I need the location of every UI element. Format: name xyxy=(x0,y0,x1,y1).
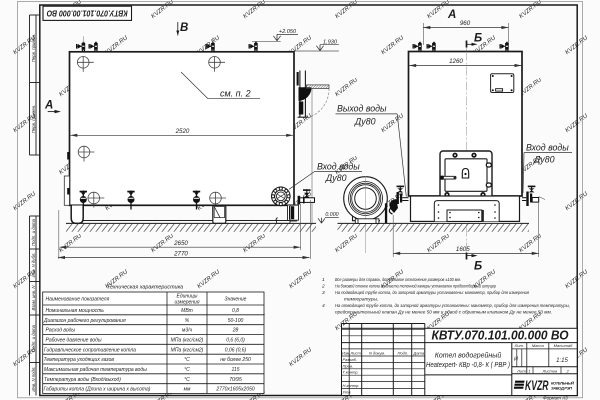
svg-text:115: 115 xyxy=(232,367,240,373)
svg-text:0,8: 0,8 xyxy=(232,308,239,314)
svg-text:Значение: Значение xyxy=(225,297,247,303)
svg-text:А: А xyxy=(447,9,456,21)
svg-text:измерения: измерения xyxy=(174,300,199,306)
svg-text:Перв. примен.: Перв. примен. xyxy=(31,34,36,63)
svg-text:не более 250: не более 250 xyxy=(220,357,251,363)
svg-text:Б: Б xyxy=(474,33,482,45)
svg-text:2: 2 xyxy=(321,284,325,290)
svg-text:1: 1 xyxy=(528,368,530,373)
svg-text:И: И xyxy=(514,357,518,363)
svg-text:Инв. N дубл.: Инв. N дубл. xyxy=(31,253,36,278)
svg-text:1260: 1260 xyxy=(449,58,463,65)
svg-text:Масса: Масса xyxy=(532,343,545,348)
svg-text:KVZR: KVZR xyxy=(525,378,549,393)
svg-text:Формат А3: Формат А3 xyxy=(543,396,568,400)
svg-text:°С: °С xyxy=(184,377,190,383)
svg-text:Ду80: Ду80 xyxy=(325,173,347,183)
svg-text:Б: Б xyxy=(474,261,482,273)
svg-text:3: 3 xyxy=(322,290,325,296)
svg-text:°С: °С xyxy=(184,367,190,373)
svg-text:960: 960 xyxy=(460,20,471,27)
svg-text:Листов: Листов xyxy=(542,368,558,373)
svg-text:Дата: Дата xyxy=(413,350,425,355)
svg-text:Котел водогрейный: Котел водогрейный xyxy=(435,352,502,360)
svg-text:1605: 1605 xyxy=(456,246,470,253)
svg-text:предохранительный клапан Ду н: предохранительный клапан Ду не менее 50 … xyxy=(335,309,552,316)
svg-text:м3/ч: м3/ч xyxy=(182,328,193,334)
svg-text:70/95: 70/95 xyxy=(229,377,242,383)
svg-text:КВТУ.070.101.00.000 ВО: КВТУ.070.101.00.000 ВО xyxy=(47,8,128,17)
svg-text:Н.контр.: Н.контр. xyxy=(343,383,360,388)
svg-text:4: 4 xyxy=(322,303,325,309)
svg-text:МВт: МВт xyxy=(181,308,193,314)
svg-text:Лист: Лист xyxy=(350,350,362,355)
svg-text:температуры.: температуры. xyxy=(344,298,378,303)
svg-text:Гидравлическое сопротивление к: Гидравлическое сопротивление котла xyxy=(44,347,136,353)
svg-text:28: 28 xyxy=(232,328,239,334)
svg-text:Расход воды: Расход воды xyxy=(46,328,76,334)
svg-text:0.000: 0.000 xyxy=(325,212,338,218)
svg-text:Габариты котла (Длина х ширина: Габариты котла (Длина х ширина х высота) xyxy=(44,387,151,393)
svg-text:Лист: Лист xyxy=(516,368,528,373)
svg-text:Максимальная рабочая температу: Максимальная рабочая температура воды xyxy=(44,367,147,373)
svg-text:Подп. и дата: Подп. и дата xyxy=(31,324,36,352)
svg-text:МПа (кгс/см2): МПа (кгс/см2) xyxy=(171,338,204,344)
svg-text:1:15: 1:15 xyxy=(556,358,568,364)
svg-text:Вход воды: Вход воды xyxy=(526,143,569,153)
svg-text:Инв. N подл.: Инв. N подл. xyxy=(31,366,36,391)
svg-text:%: % xyxy=(185,318,190,324)
svg-text:Рабочее давление воды: Рабочее давление воды xyxy=(46,338,102,344)
svg-text:°С: °С xyxy=(184,357,190,363)
svg-text:Вход воды: Вход воды xyxy=(317,162,360,172)
svg-text:Температура уходящих газов: Температура уходящих газов xyxy=(44,357,115,363)
svg-text:ЗАВОД РЭП: ЗАВОД РЭП xyxy=(551,385,572,390)
svg-text:Перв. примен.: Перв. примен. xyxy=(31,105,36,134)
svg-text:Наименование показателя: Наименование показателя xyxy=(46,297,110,303)
svg-text:0,06 (0,6): 0,06 (0,6) xyxy=(225,347,247,353)
svg-text:В: В xyxy=(180,22,188,34)
svg-text:Пров.: Пров. xyxy=(343,363,354,368)
svg-text:2770: 2770 xyxy=(173,250,188,257)
svg-text:Изм.: Изм. xyxy=(342,350,351,355)
svg-text:1.930: 1.930 xyxy=(323,39,338,45)
svg-text:Утв.: Утв. xyxy=(343,389,352,394)
svg-text:Лит.: Лит. xyxy=(514,343,524,348)
svg-text:мм: мм xyxy=(184,387,191,393)
svg-text:50-100: 50-100 xyxy=(228,318,244,324)
svg-text:+2.050: +2.050 xyxy=(279,29,297,35)
svg-text:МПа (кгс/см2): МПа (кгс/см2) xyxy=(171,347,204,353)
svg-text:0,6 (6,0): 0,6 (6,0) xyxy=(226,338,245,344)
svg-text:Т.контр.: Т.контр. xyxy=(343,370,359,375)
svg-text:Heatexpert- КВр -0,8- К ( РВР: Heatexpert- КВр -0,8- К ( РВР ) xyxy=(426,362,510,369)
svg-text:А: А xyxy=(44,100,53,112)
svg-text:Ду80: Ду80 xyxy=(354,117,376,127)
svg-text:Взам. инв. N: Взам. инв. N xyxy=(31,285,36,311)
svg-text:N докум.: N докум. xyxy=(369,350,385,355)
svg-text:Подп. и дата: Подп. и дата xyxy=(31,218,36,246)
svg-text:Температура воды (Вход/выход): Температура воды (Вход/выход) xyxy=(44,377,121,383)
svg-text:На отводящей трубе котла, до з: На отводящей трубе котла, до запорной ар… xyxy=(335,302,570,309)
svg-text:На подводящей трубе котла, д: На подводящей трубе котла, до запорной а… xyxy=(335,289,529,296)
svg-text:2520: 2520 xyxy=(175,128,190,135)
svg-text:2650: 2650 xyxy=(173,240,188,247)
svg-text:КВТУ.070.101.00.000 ВО: КВТУ.070.101.00.000 ВО xyxy=(432,329,569,343)
svg-text:см. п. 2: см. п. 2 xyxy=(220,89,251,99)
svg-text:На боковой стенке котла в обла: На боковой стенке котла в области топочн… xyxy=(335,283,496,290)
svg-text:Диапазон рабочего регулировани: Диапазон рабочего регулирования xyxy=(43,318,126,324)
svg-text:Ду80: Ду80 xyxy=(533,154,555,164)
svg-text:Подп.: Подп. xyxy=(398,350,409,355)
svg-text:Выход воды: Выход воды xyxy=(337,104,387,114)
svg-text:Все размеры для справок, допус: Все размеры для справок, допустимое откл… xyxy=(335,277,461,283)
svg-text:Разраб.: Разраб. xyxy=(343,357,357,362)
svg-text:Масштаб: Масштаб xyxy=(554,343,573,348)
svg-text:1: 1 xyxy=(322,277,325,283)
svg-text:Номинальная мощность: Номинальная мощность xyxy=(46,308,105,314)
svg-text:Техническая характеристика: Техническая характеристика xyxy=(107,285,183,291)
svg-text:2770х1605х2050: 2770х1605х2050 xyxy=(215,387,255,393)
